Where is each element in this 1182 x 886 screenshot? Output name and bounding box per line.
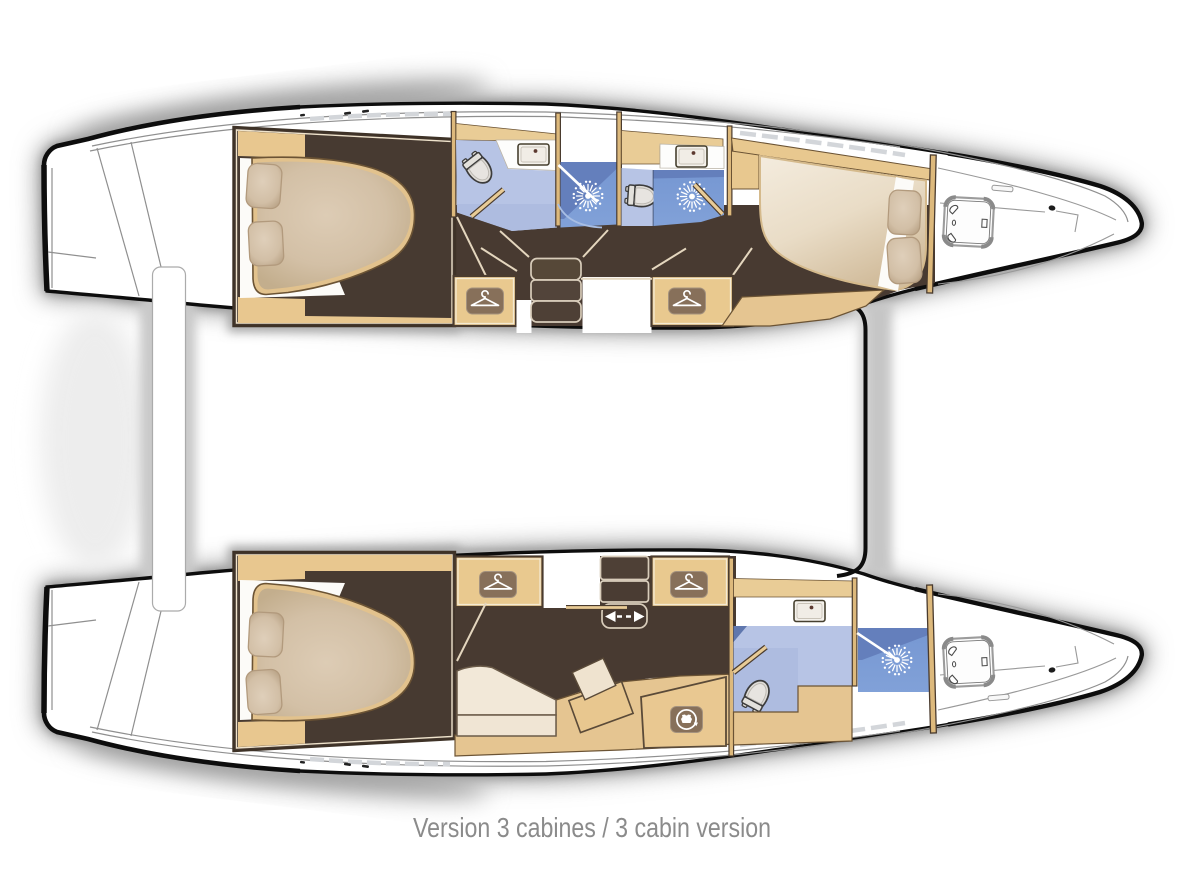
svg-text:Version 3 cabines / 3 cabin ve: Version 3 cabines / 3 cabin version bbox=[413, 812, 771, 843]
